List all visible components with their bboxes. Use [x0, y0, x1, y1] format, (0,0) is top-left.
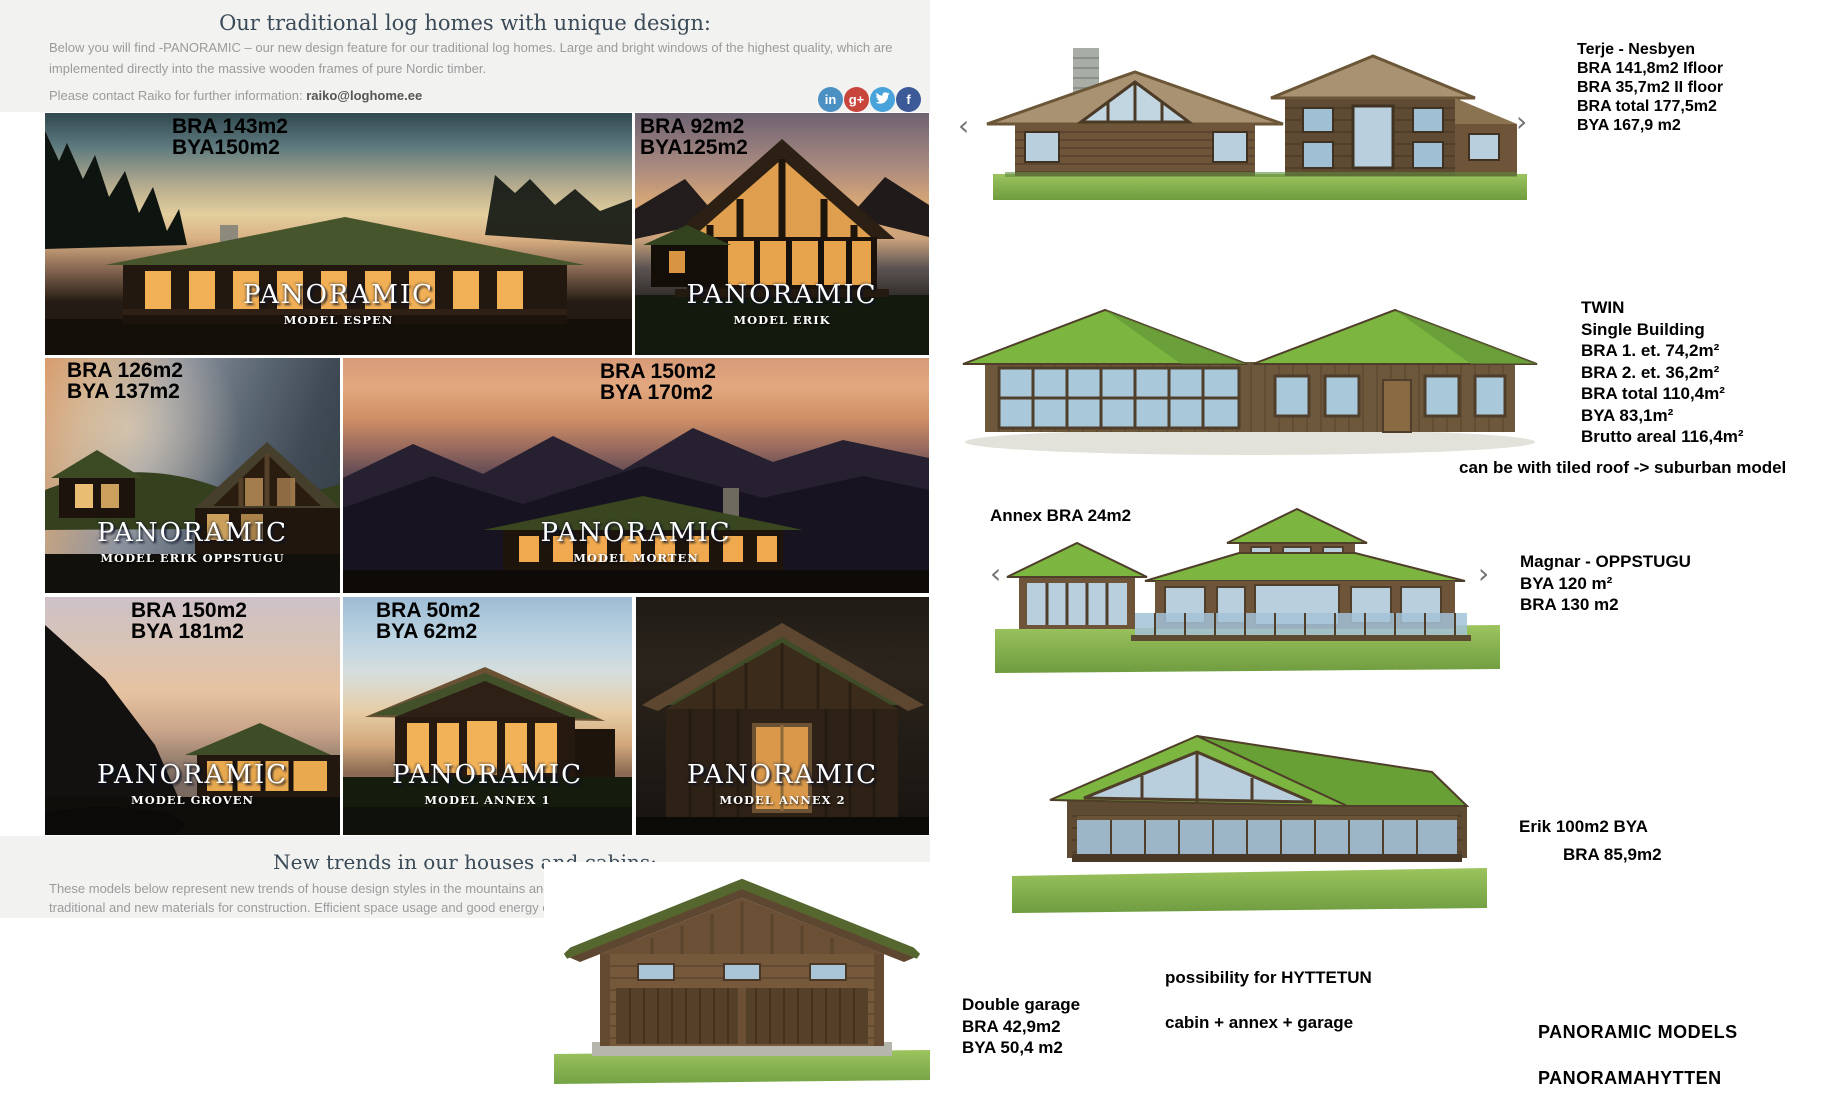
spec-line: Brutto areal 116,4m² [1581, 426, 1744, 448]
hyttetun-line-2: cabin + annex + garage [1165, 1012, 1353, 1034]
photo-caption: PANORAMIC MODEL ANNEX 2 [636, 760, 929, 807]
brand-name: PANORAMIC [343, 518, 929, 548]
twin-spec-block: TWIN Single Building BRA 1. et. 74,2m² B… [1581, 297, 1744, 448]
brand-name: PANORAMIC [45, 518, 340, 548]
twin-building-render [955, 282, 1545, 462]
spec-line: Single Building [1581, 319, 1744, 341]
spec-line: TWIN [1581, 297, 1744, 319]
model-name: MODEL ERIK OPPSTUGU [45, 551, 340, 565]
gallery-photo-annex-2[interactable]: PANORAMIC MODEL ANNEX 2 [636, 597, 929, 835]
photo-caption: PANORAMIC MODEL ESPEN [45, 280, 632, 327]
intro-line-1: Below you will find -PANORAMIC – our new… [49, 40, 893, 55]
linkedin-icon[interactable]: in [818, 87, 843, 112]
spec-line: BRA 42,9m2 [962, 1016, 1080, 1038]
photo-caption: PANORAMIC MODEL ERIK [635, 280, 929, 327]
bra-value: BRA 126m2 [67, 360, 183, 381]
spec-line: BRA 1. et. 74,2m² [1581, 340, 1744, 362]
erik-spec-block: Erik 100m2 BYA BRA 85,9m2 [1519, 816, 1662, 865]
brand-name: PANORAMIC [636, 760, 929, 790]
panoramahytten-label: PANORAMAHYTTEN [1538, 1068, 1722, 1089]
spec-line: BYA 120 m² [1520, 573, 1691, 595]
annex-area-label: Annex BRA 24m2 [990, 505, 1131, 527]
area-label: BRA 50m2 BYA 62m2 [376, 600, 480, 642]
model-name: MODEL MORTEN [343, 551, 929, 565]
carousel-2-prev-icon[interactable]: ‹ [990, 560, 1001, 588]
gallery-photo-morten[interactable]: BRA 150m2 BYA 170m2 PANORAMIC MODEL MORT… [343, 358, 929, 593]
bya-value: BYA 137m2 [67, 381, 183, 402]
bra-value: BRA 150m2 [600, 361, 716, 382]
page: Our traditional log homes with unique de… [0, 0, 1842, 1100]
model-name: MODEL ERIK [635, 313, 929, 327]
gallery-photo-erik[interactable]: BRA 92m2 BYA125m2 PANORAMIC MODEL ERIK [635, 113, 929, 355]
carousel-2-next-icon[interactable]: › [1478, 560, 1489, 588]
carousel-1-next-icon[interactable]: › [1516, 108, 1527, 136]
area-label: BRA 150m2 BYA 170m2 [600, 361, 716, 403]
spec-line: BYA 50,4 m2 [962, 1037, 1080, 1059]
spec-line: BRA 2. et. 36,2m² [1581, 362, 1744, 384]
terje-spec-block: Terje - Nesbyen BRA 141,8m2 Ifloor BRA 3… [1577, 40, 1723, 135]
photo-caption: PANORAMIC MODEL GROVEN [45, 760, 340, 807]
spec-line: BYA 83,1m² [1581, 405, 1744, 427]
brand-name: PANORAMIC [635, 280, 929, 310]
bya-value: BYA 181m2 [131, 621, 247, 642]
area-label: BRA 126m2 BYA 137m2 [67, 360, 183, 402]
spec-line: BRA 141,8m2 Ifloor [1577, 59, 1723, 78]
trends-line-1: These models below represent new trends … [49, 881, 551, 896]
bya-value: BYA 170m2 [600, 382, 716, 403]
terje-nesbyen-render [985, 28, 1535, 206]
bra-value: BRA 50m2 [376, 600, 480, 621]
page-title: Our traditional log homes with unique de… [0, 11, 930, 35]
panoramic-models-label: PANORAMIC MODELS [1538, 1022, 1738, 1043]
spec-line: BYA 167,9 m2 [1577, 116, 1723, 135]
twin-roof-note: can be with tiled roof -> suburban model [1459, 458, 1786, 478]
bra-value: BRA 92m2 [640, 116, 748, 137]
trends-line-2: traditional and new materials for constr… [49, 900, 553, 915]
area-label: BRA 143m2 BYA150m2 [172, 116, 288, 158]
twitter-icon[interactable] [870, 87, 895, 112]
garage-spec-block: Double garage BRA 42,9m2 BYA 50,4 m2 [962, 994, 1080, 1059]
brand-name: PANORAMIC [343, 760, 632, 790]
double-garage-render [552, 872, 932, 1087]
spec-line: Erik 100m2 BYA [1519, 816, 1662, 838]
contact-email-link[interactable]: raiko@loghome.ee [306, 88, 422, 103]
spec-line: BRA 35,7m2 II floor [1577, 78, 1723, 97]
intro-line-2: implemented directly into the massive wo… [49, 61, 486, 76]
gallery-photo-groven[interactable]: BRA 150m2 BYA 181m2 PANORAMIC MODEL GROV… [45, 597, 340, 835]
area-label: BRA 92m2 BYA125m2 [640, 116, 748, 158]
spec-line: Terje - Nesbyen [1577, 40, 1723, 59]
hyttetun-line-1: possibility for HYTTETUN [1165, 967, 1372, 989]
gallery-photo-espen[interactable]: BRA 143m2 BYA150m2 PANORAMIC MODEL ESPEN [45, 113, 632, 355]
photo-caption: PANORAMIC MODEL ERIK OPPSTUGU [45, 518, 340, 565]
bya-value: BYA125m2 [640, 137, 748, 158]
spec-line: BRA 85,9m2 [1563, 844, 1662, 866]
model-name: MODEL GROVEN [45, 793, 340, 807]
spec-line: BRA total 110,4m² [1581, 383, 1744, 405]
facebook-icon[interactable]: f [896, 87, 921, 112]
photo-caption: PANORAMIC MODEL MORTEN [343, 518, 929, 565]
bya-value: BYA 62m2 [376, 621, 480, 642]
model-name: MODEL ESPEN [45, 313, 632, 327]
bra-value: BRA 143m2 [172, 116, 288, 137]
spec-line: BRA total 177,5m2 [1577, 97, 1723, 116]
spec-line: BRA 130 m2 [1520, 594, 1691, 616]
model-name: MODEL ANNEX 2 [636, 793, 929, 807]
social-icons: ing+f [818, 87, 922, 112]
photo-caption: PANORAMIC MODEL ANNEX 1 [343, 760, 632, 807]
google-plus-icon[interactable]: g+ [844, 87, 869, 112]
brand-name: PANORAMIC [45, 280, 632, 310]
contact-line: Please contact Raiko for further informa… [49, 88, 422, 103]
spec-line: Double garage [962, 994, 1080, 1016]
erik-100-render [1012, 708, 1487, 913]
model-name: MODEL ANNEX 1 [343, 793, 632, 807]
bya-value: BYA150m2 [172, 137, 288, 158]
gallery-photo-erik-oppstugu[interactable]: BRA 126m2 BYA 137m2 PANORAMIC MODEL ERIK… [45, 358, 340, 593]
magnar-spec-block: Magnar - OPPSTUGU BYA 120 m² BRA 130 m2 [1520, 551, 1691, 616]
brand-name: PANORAMIC [45, 760, 340, 790]
garage-render-card [544, 862, 935, 1100]
contact-text: Please contact Raiko for further informa… [49, 88, 306, 103]
header-box: Our traditional log homes with unique de… [0, 0, 930, 112]
gallery-photo-annex-1[interactable]: BRA 50m2 BYA 62m2 PANORAMIC MODEL ANNEX … [343, 597, 632, 835]
bra-value: BRA 150m2 [131, 600, 247, 621]
area-label: BRA 150m2 BYA 181m2 [131, 600, 247, 642]
spec-line: Magnar - OPPSTUGU [1520, 551, 1691, 573]
carousel-1-prev-icon[interactable]: ‹ [958, 112, 969, 140]
